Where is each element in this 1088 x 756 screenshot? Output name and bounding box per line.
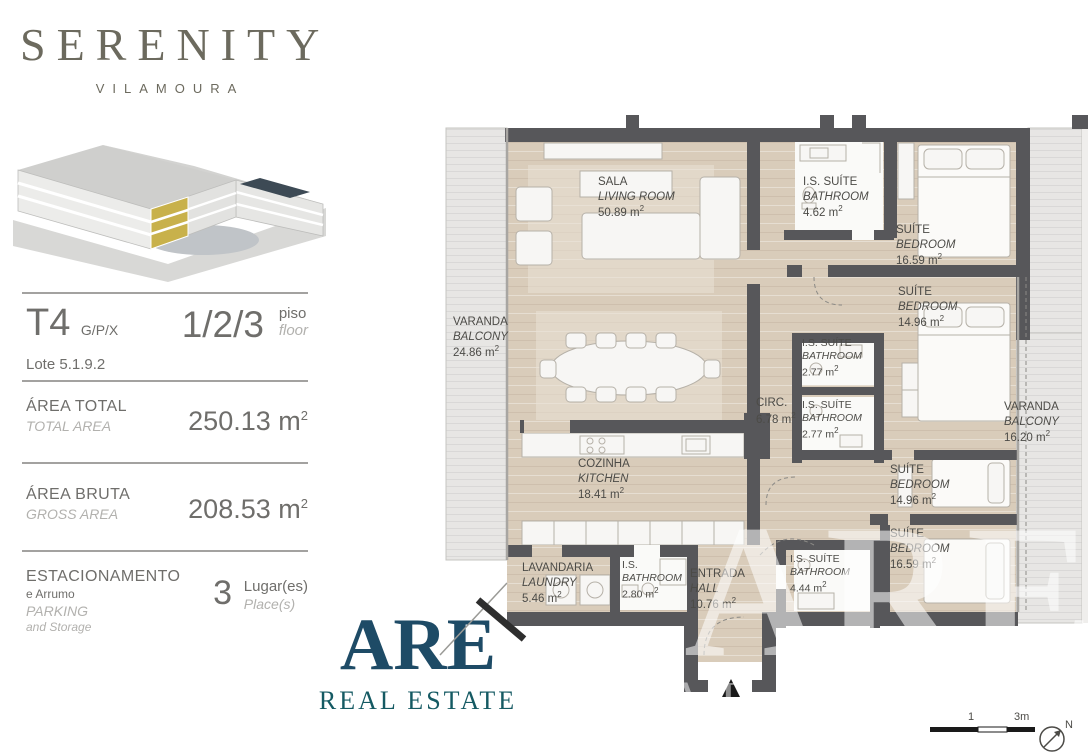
building-render	[8, 112, 338, 284]
room-label-suite-3: SUÍTE BEDROOM 14.96 m2	[890, 463, 949, 509]
unit-lot: Lote 5.1.9.2	[26, 356, 105, 373]
scale-tick-mid: 1	[968, 711, 974, 723]
area-total-value: 250.13 m2	[188, 406, 308, 437]
room-label-suite-2: SUÍTE BEDROOM 14.96 m2	[898, 285, 957, 331]
room-label-balcony-right: VARANDA BALCONY 16.20 m2	[1004, 400, 1059, 446]
room-label-living: SALA LIVING ROOM 50.89 m2	[598, 175, 675, 221]
divider	[22, 550, 308, 552]
brand-logo: SERENITY VILAMOURA	[20, 18, 320, 96]
floor-plan-drawing	[432, 115, 1088, 756]
brand-location: VILAMOURA	[20, 81, 320, 96]
area-gross-value: 208.53 m2	[188, 494, 308, 525]
room-label-bath-suite-3: I.S. SUÍTE BATHROOM 2.77 m2	[802, 399, 862, 442]
page: SERENITY VILAMOURA T4 G/P/X 1/2/3 piso f…	[0, 0, 1088, 756]
parking-unit-label: Lugar(es) Place(s)	[244, 578, 308, 613]
parking-label: ESTACIONAMENTO e Arrumo PARKING and Stor…	[26, 568, 180, 634]
brand-name: SERENITY	[20, 18, 320, 71]
scale-tick-end: 3m	[1014, 711, 1029, 723]
room-label-kitchen: COZINHA KITCHEN 18.41 m2	[578, 457, 630, 503]
room-label-suite-4: SUÍTE BEDROOM 16.59 m2	[890, 527, 949, 573]
area-total-label: ÁREA TOTAL TOTAL AREA	[26, 398, 127, 434]
room-label-laundry: LAVANDARIA LAUNDRY 5.46 m2	[522, 561, 593, 607]
divider	[22, 380, 308, 382]
area-gross-label: ÁREA BRUTA GROSS AREA	[26, 486, 130, 522]
unit-floors: 1/2/3	[182, 304, 264, 346]
scale-bar	[930, 727, 1035, 732]
room-label-hall: ENTRADA HALL 10.76 m2	[690, 567, 745, 613]
entrance-arrow-icon	[722, 679, 740, 697]
compass-icon	[1040, 727, 1064, 751]
floor-plan: SALA LIVING ROOM 50.89 m2 I.S. SUÍTE BAT…	[432, 115, 1088, 756]
vestibule-floor	[698, 612, 762, 662]
room-label-bath-suite-1: I.S. SUÍTE BATHROOM 4.62 m2	[803, 175, 869, 221]
unit-typology: T4 G/P/X	[26, 302, 118, 345]
room-label-bath: I.S. BATHROOM 2.80 m2	[622, 559, 682, 602]
room-label-bath-suite-2: I.S. SUÍTE BATHROOM 2.77 m2	[802, 337, 862, 380]
room-label-balcony-left: VARANDA BALCONY 24.86 m2	[453, 315, 508, 361]
parking-count: 3	[213, 574, 232, 613]
room-label-bath-suite-4: I.S. SUÍTE BATHROOM 4.44 m2	[790, 553, 850, 596]
room-label-circulation: CIRC. 6.78 m2	[756, 396, 796, 427]
divider	[22, 462, 308, 464]
compass-north-label: N	[1065, 719, 1073, 731]
room-label-suite-1: SUÍTE BEDROOM 16.59 m2	[896, 223, 955, 269]
divider	[22, 292, 308, 294]
unit-floors-label: piso floor	[279, 306, 308, 339]
spec-sheet: T4 G/P/X 1/2/3 piso floor Lote 5.1.9.2 Á…	[22, 292, 308, 640]
